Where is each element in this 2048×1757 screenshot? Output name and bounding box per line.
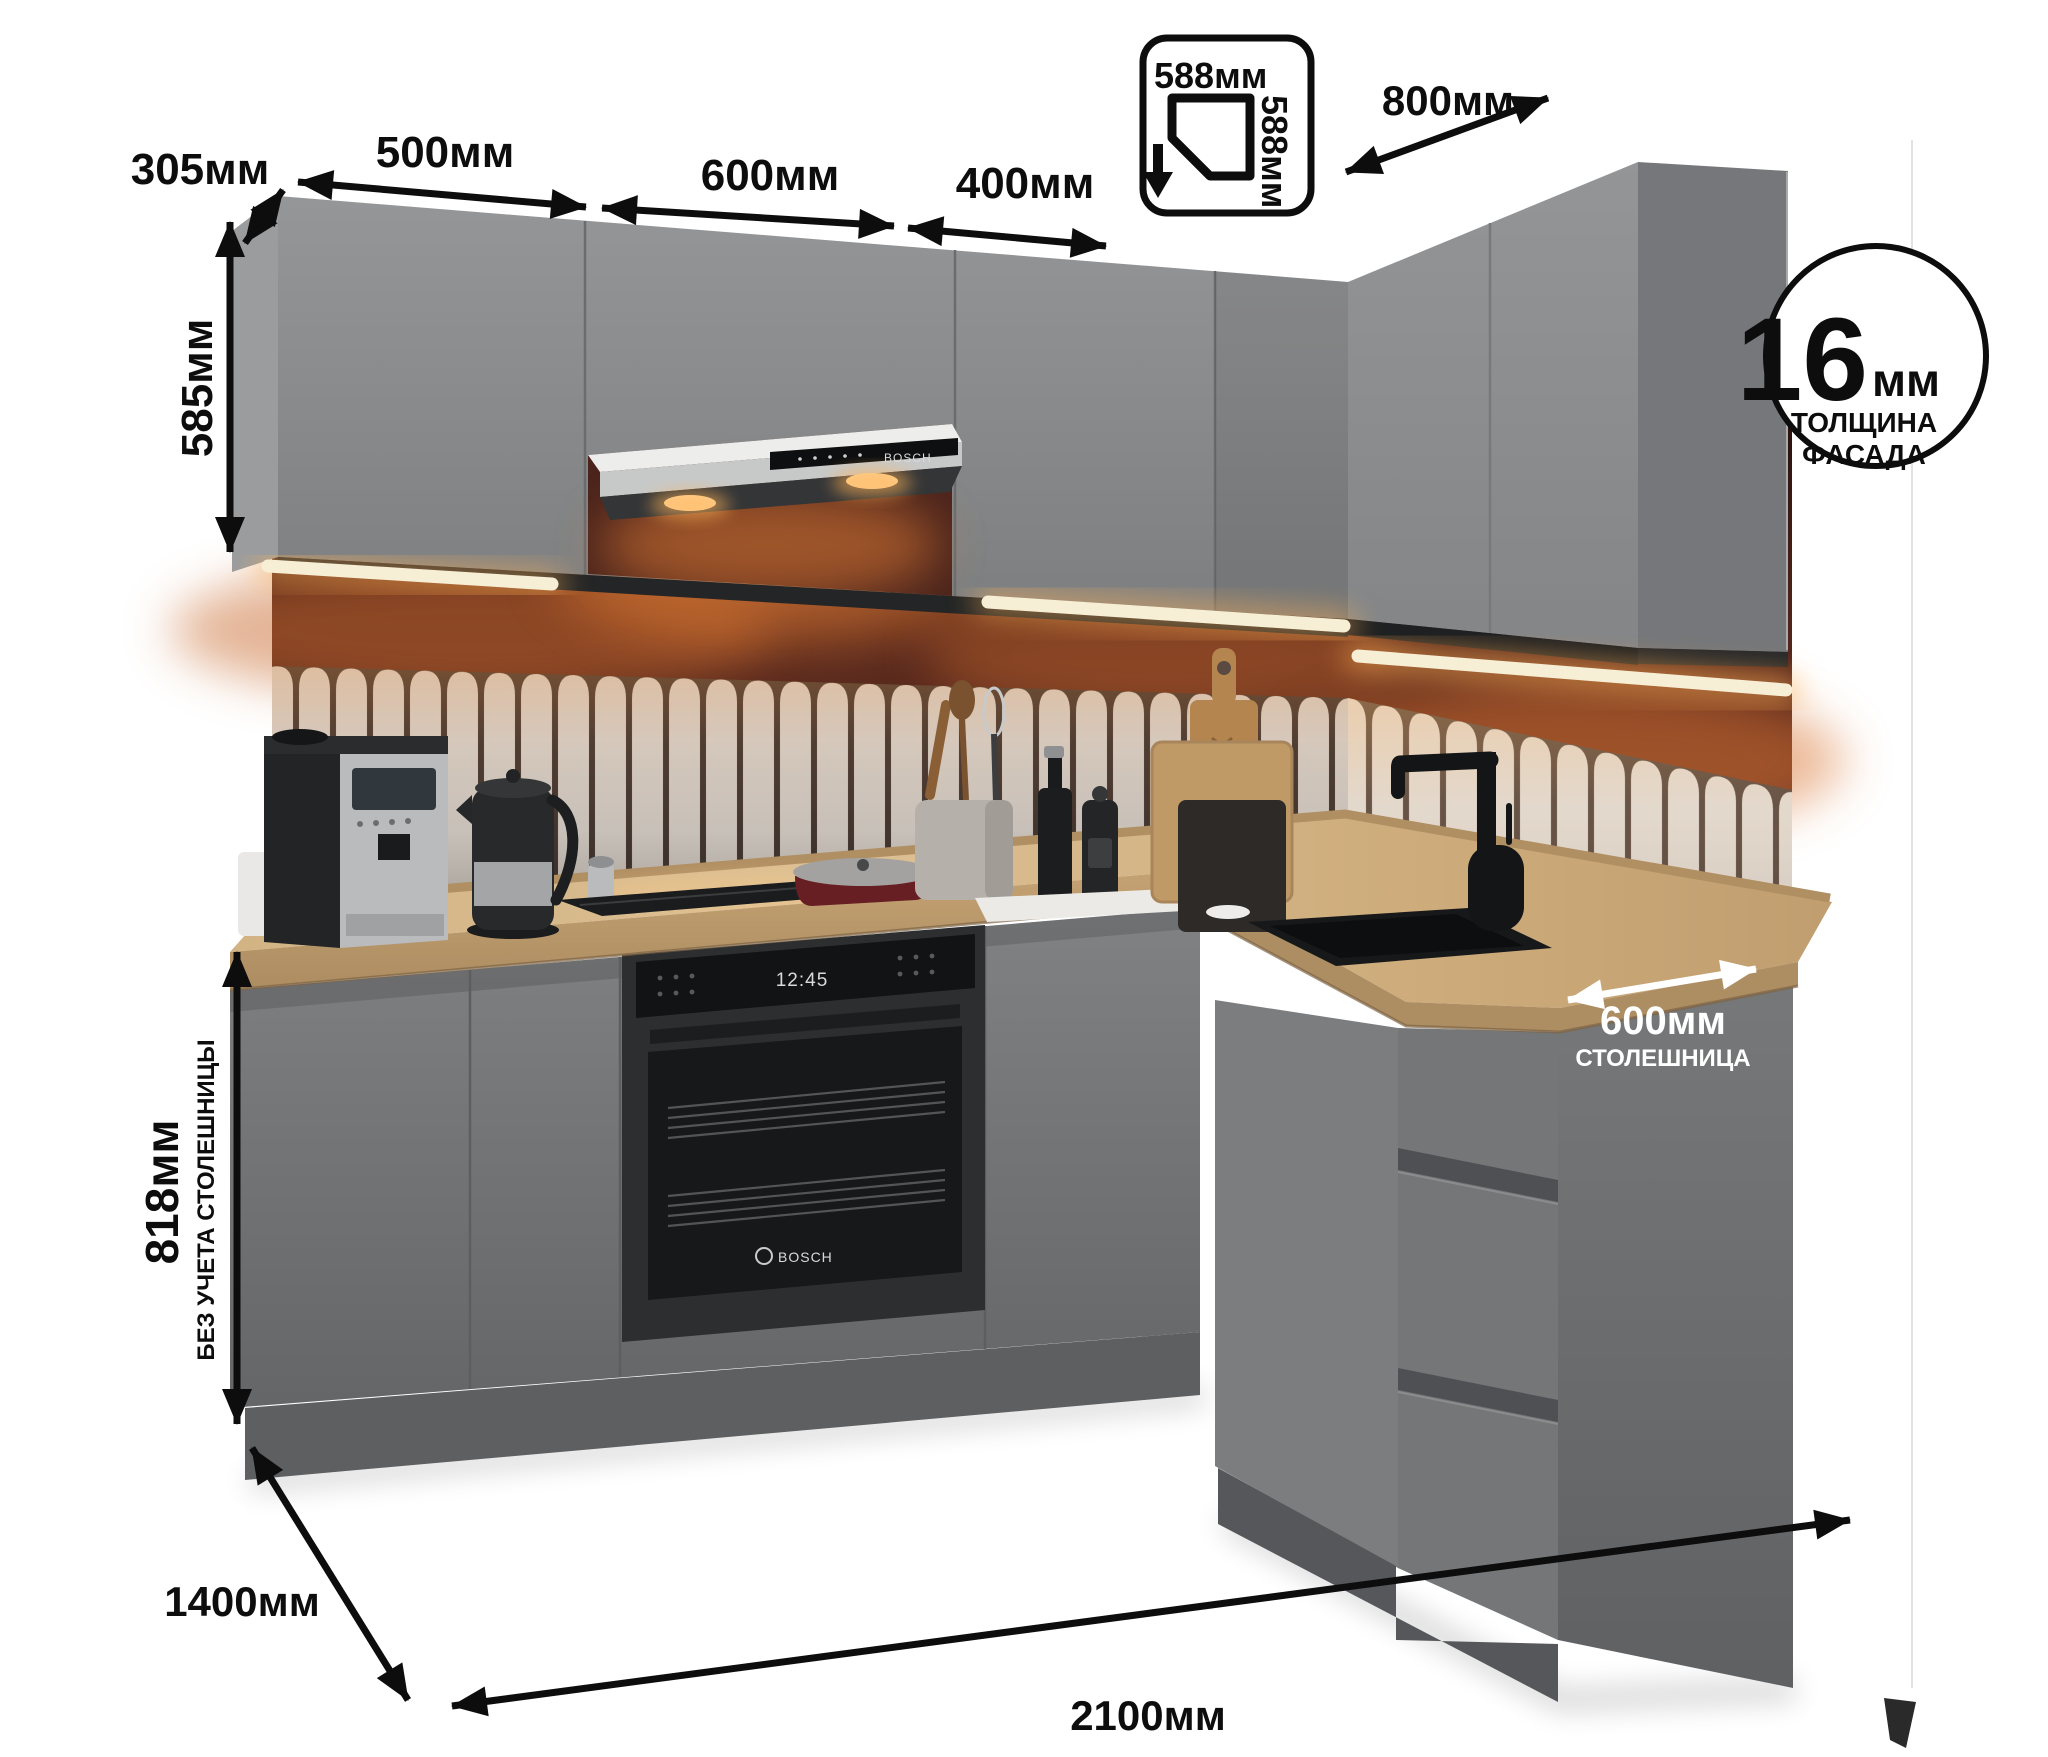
label-585: 585мм [173,319,222,458]
coffee-spout [378,834,410,860]
saucepan-knob [857,859,869,871]
upper-left-side-panel [232,196,278,572]
coffee-machine [238,729,448,948]
coffee-machine-screen [352,768,436,810]
oven-brand-label: BOSCH [778,1249,833,1265]
oven: 12:45 BOSCH [622,925,985,1342]
board-handle [1212,648,1236,706]
corner-size-badge: 588мм 588мм [1143,38,1311,213]
dimension-upper-right-run: 800мм [1346,77,1548,172]
badge-width-label: 588мм [1154,55,1267,96]
pepper-mill-label [1088,838,1112,868]
board-handle-hole [1217,661,1231,675]
label-600-countertop: 600мм [1600,999,1726,1043]
label-305: 305мм [131,145,270,194]
product-image: BOSCH [0,0,2048,1757]
utensil-crock-shade [985,800,1013,900]
dimension-upper-section-3: 400мм [908,159,1106,246]
pepper-mill-knob [1092,786,1108,802]
bottle-neck [1048,756,1062,792]
faucet-base [1468,845,1524,931]
coffee-machine-body [264,748,340,948]
thickness-unit: мм [1872,354,1940,406]
oil-bottle [1038,788,1072,904]
cabinet-foot [1884,1698,1916,1748]
faucet-arm [1400,760,1490,764]
label-800: 800мм [1382,77,1514,124]
label-600: 600мм [701,151,840,200]
upper-corner-door-shade [1215,271,1348,619]
label-400: 400мм [956,159,1095,208]
coffee-bean-hopper [272,729,328,745]
oven-clock: 12:45 [776,970,829,991]
hood-brand-label: BOSCH [884,451,932,465]
hood-lamp-glow-right [832,469,912,497]
arrow-400 [908,228,1106,246]
small-dish [1206,905,1250,919]
grinder-top [588,856,614,868]
kettle-body [472,788,554,930]
thickness-caption-2: ФАСАДА [1802,439,1926,470]
badge-depth-label: 588мм [1254,95,1295,208]
coffee-drip-tray [346,914,444,936]
kettle-knob [506,769,520,783]
label-1400: 1400мм [164,1578,320,1625]
dimension-upper-height: 585мм [173,222,230,552]
dimension-base-height: 818мм БЕЗ УЧЕТА СТОЛЕШНИЦЫ [136,952,237,1424]
utensil-spoon-head [949,680,975,720]
kitchen-scene: BOSCH [0,0,2048,1757]
label-818: 818мм [136,1120,188,1265]
label-818-note: БЕЗ УЧЕТА СТОЛЕШНИЦЫ [193,1039,220,1360]
label-500: 500мм [376,128,515,177]
dimension-upper-section-2: 600мм [602,151,894,226]
utensil-spoon-handle [962,718,966,800]
arrow-600 [602,208,894,226]
label-600-countertop-note: СТОЛЕШНИЦА [1575,1045,1750,1072]
thickness-caption-1: ТОЛЩИНА [1791,407,1937,438]
bottle-cap [1044,746,1064,758]
label-2100: 2100мм [1070,1692,1226,1739]
upper-right-block-front [1348,162,1638,648]
utensil-whisk-handle [994,734,996,802]
arrow-1400 [252,1448,408,1700]
dimension-upper-section-1: 500мм [298,128,586,207]
drawer-unit-front [1398,1028,1558,1640]
hood-lamp-glow-left [650,491,730,519]
base-right-side-panel [1558,986,1793,1688]
kettle-steel-band [474,862,552,906]
